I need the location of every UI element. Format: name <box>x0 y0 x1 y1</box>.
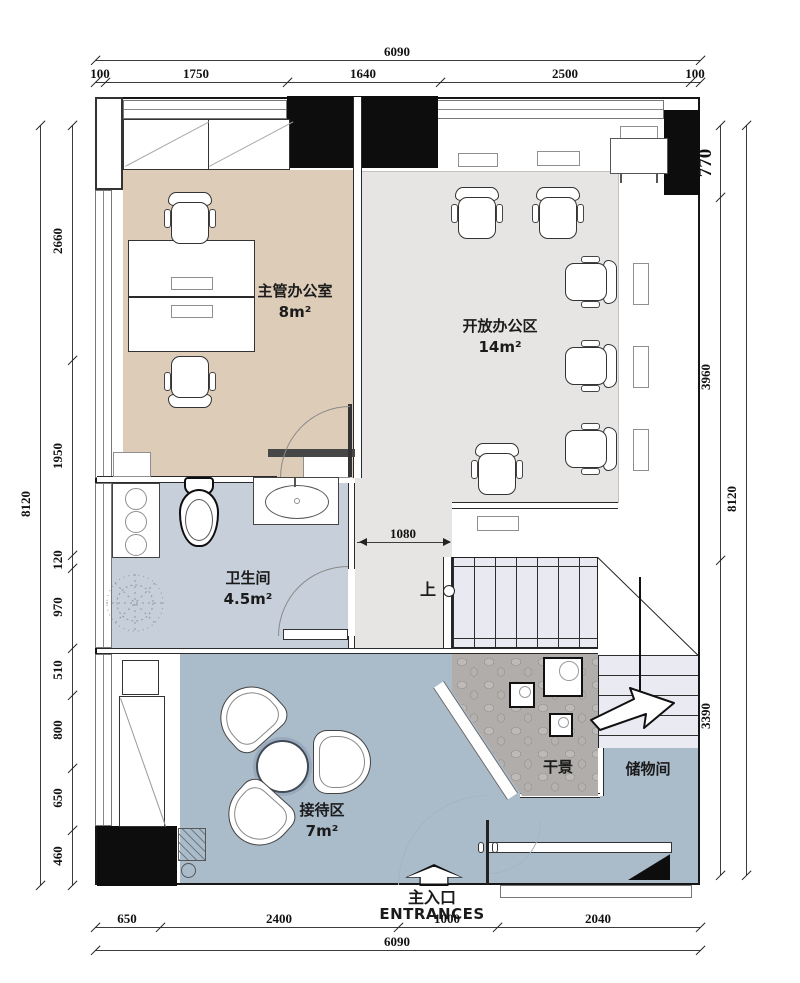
dim-line-left-total <box>40 125 41 885</box>
label-storage: 储物间 <box>608 759 688 780</box>
chair-armrest <box>209 209 216 228</box>
dim-bottom-0: 650 <box>92 911 162 927</box>
chair-seat <box>458 197 496 239</box>
wall-bath-bottom <box>97 648 455 654</box>
reception-cabinet <box>119 696 165 827</box>
dim-line-stair-clear <box>357 542 450 543</box>
stair-upper-flight <box>452 557 598 648</box>
toilet-seat <box>185 499 213 541</box>
dim-bottom-2: 1000 <box>412 911 482 927</box>
dim-bottom-total: 6090 <box>362 934 432 950</box>
wall-desk <box>537 151 580 166</box>
floor-hatch <box>178 828 206 861</box>
plant <box>98 566 172 640</box>
dim-line-right-total <box>746 125 747 875</box>
wall-desk <box>458 153 498 167</box>
window-top-right <box>437 100 664 119</box>
office-chair <box>164 352 216 408</box>
chair-armrest <box>209 372 216 391</box>
chair-seat <box>539 197 577 239</box>
stone-ring <box>558 717 569 728</box>
dim-arrow-right <box>443 538 455 546</box>
cabinet-divider <box>208 120 209 169</box>
chair-armrest <box>532 204 539 223</box>
room-area: 4.5m² <box>188 589 308 610</box>
dim-top-2: 1640 <box>328 66 398 82</box>
side-cabinet <box>113 452 151 477</box>
label-dry-landscape: 干景 <box>518 757 598 778</box>
label-reception: 接待区 7m² <box>262 800 382 842</box>
office-chair <box>561 256 617 308</box>
chair-armrest <box>471 460 478 479</box>
corner-pillar <box>95 97 123 190</box>
chair-seat <box>478 453 516 495</box>
dim-left-3: 970 <box>50 572 66 642</box>
wall-stair-left <box>443 557 452 648</box>
dim-line-bottom-total <box>95 950 700 951</box>
chair-armrest <box>581 385 600 392</box>
dim-right-2: 3390 <box>698 681 714 751</box>
label-open-office: 开放办公区 14m² <box>440 316 560 358</box>
chair-seat <box>565 430 607 468</box>
wall-stair-bottom <box>452 648 598 654</box>
office-chair <box>451 187 503 243</box>
sink-counter <box>253 477 339 525</box>
office-chair <box>164 192 216 248</box>
label-stair-up: 上 <box>416 579 440 601</box>
chair-seat <box>565 263 607 301</box>
dim-right-1: 3960 <box>698 342 714 412</box>
floor-circle-marker <box>181 863 196 878</box>
dim-left-total: 8120 <box>18 469 34 539</box>
manager-cabinet <box>123 119 290 170</box>
window-top-left <box>123 100 287 119</box>
printer <box>610 138 668 174</box>
wall-bath-right-stub <box>348 636 355 648</box>
chair-armrest <box>581 301 600 308</box>
window-left-upper <box>95 190 112 478</box>
chair-armrest <box>451 204 458 223</box>
shelf-circle <box>125 534 147 556</box>
dim-left-0: 2660 <box>50 206 66 276</box>
label-manager-office: 主管办公室 8m² <box>235 281 355 323</box>
dim-top-4: 100 <box>660 66 730 82</box>
toilet <box>176 475 222 549</box>
label-bathroom: 卫生间 4.5m² <box>188 568 308 610</box>
dim-left-7: 460 <box>50 821 66 891</box>
wall-desk <box>633 346 649 388</box>
shelf-circle <box>125 488 147 510</box>
stair-landing-diagonal <box>597 557 698 655</box>
dim-bottom-3: 2040 <box>563 911 633 927</box>
chair-armrest <box>577 204 584 223</box>
reception-column <box>122 660 159 695</box>
chair-armrest <box>164 209 171 228</box>
dim-line-right-segments <box>720 125 721 875</box>
chair-armrest <box>581 340 600 347</box>
printer-leg <box>620 174 622 183</box>
printer-leg <box>656 174 658 183</box>
dim-top-0: 100 <box>65 66 135 82</box>
office-chair <box>561 340 617 392</box>
wall-black-top <box>287 96 438 168</box>
bathroom-shelf <box>112 483 160 558</box>
room-area: 8m² <box>235 302 355 323</box>
wall-bath-right-upper <box>348 483 355 569</box>
door-handle <box>478 842 484 853</box>
dim-left-1: 1950 <box>50 421 66 491</box>
sink-faucet <box>294 478 296 487</box>
dim-arrow-left <box>355 538 367 546</box>
wall-desk <box>633 263 649 305</box>
wall-open-bottom <box>452 502 618 509</box>
chair-armrest <box>516 460 523 479</box>
office-chair <box>561 423 617 475</box>
wall-desk <box>477 516 519 531</box>
chair-seat <box>171 202 209 244</box>
cabinet-diagonal <box>120 698 166 827</box>
chair-armrest <box>581 256 600 263</box>
sink-drain <box>294 498 300 504</box>
room-name: 卫生间 <box>188 568 308 589</box>
dim-line-top-total <box>95 60 700 61</box>
entrance-door-leaf <box>486 820 489 884</box>
shelf-circle <box>125 511 147 533</box>
dim-bottom-1: 2400 <box>244 911 314 927</box>
cabinet-diagonal <box>125 121 209 166</box>
dim-top-3: 2500 <box>530 66 600 82</box>
stair-break-symbol <box>588 686 680 736</box>
stone-ring <box>559 661 579 681</box>
stepping-stone <box>543 657 583 697</box>
room-area: 7m² <box>262 821 382 842</box>
chair-armrest <box>581 468 600 475</box>
entry-porch-step <box>500 885 692 898</box>
chair-seat <box>171 356 209 398</box>
dim-right-total: 8120 <box>724 464 740 534</box>
door-handle <box>492 842 498 853</box>
cabinet-diagonal <box>209 121 293 166</box>
wall-black-bottom-left <box>97 826 177 886</box>
stair-up-circle <box>443 585 455 597</box>
stone-ring <box>519 686 531 698</box>
office-chair <box>471 443 523 499</box>
keyboard-tray <box>171 277 213 290</box>
chair-armrest <box>496 204 503 223</box>
room-name: 接待区 <box>262 800 382 821</box>
chair-armrest <box>581 423 600 430</box>
room-name: 主管办公室 <box>235 281 355 302</box>
keyboard-tray <box>171 305 213 318</box>
window-left-lower <box>95 654 112 826</box>
room-area: 14m² <box>440 337 560 358</box>
floor-plan-canvas: 主管办公室 8m² 开放办公区 14m² 卫生间 4.5m² 接待区 7m² 干… <box>0 0 800 983</box>
stepping-stone <box>509 682 535 708</box>
wall-desk <box>633 429 649 471</box>
office-chair <box>532 187 584 243</box>
dim-line-top-segments <box>95 82 700 83</box>
dim-left-5: 800 <box>50 695 66 765</box>
dim-stair-clear: 1080 <box>368 526 438 542</box>
chair-armrest <box>164 372 171 391</box>
dim-top-1: 1750 <box>161 66 231 82</box>
dim-top-total: 6090 <box>362 44 432 60</box>
stepping-stone <box>549 713 573 737</box>
dim-line-left-segments <box>72 125 73 885</box>
dim-right-0: 770 <box>695 128 717 198</box>
room-name: 开放办公区 <box>440 316 560 337</box>
chair-seat <box>565 347 607 385</box>
